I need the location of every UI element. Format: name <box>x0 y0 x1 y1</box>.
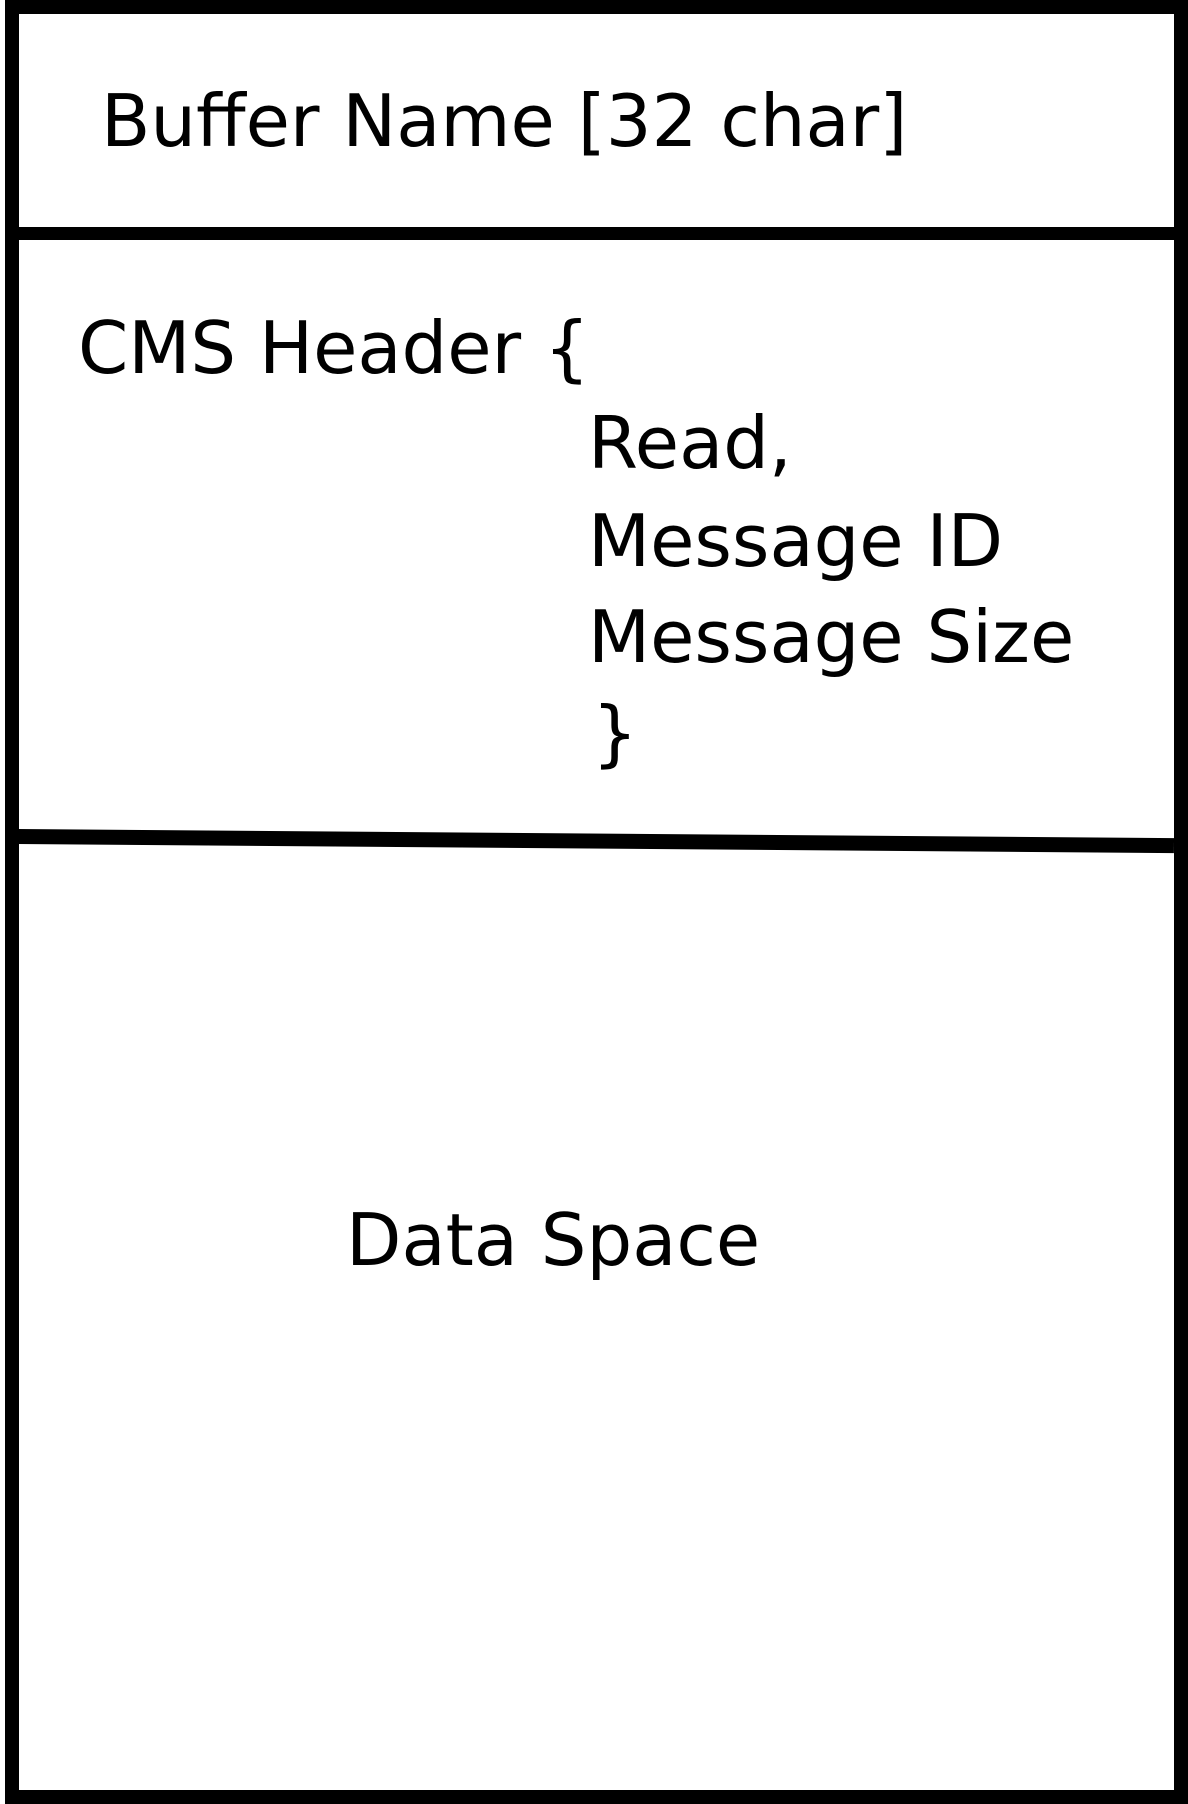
cms-header-open-line: CMS Header { <box>78 312 590 384</box>
cms-header-field-read: Read, <box>588 407 792 479</box>
diagram-outer-frame <box>5 0 1188 1804</box>
cms-header-field-message-id: Message ID <box>588 505 1003 577</box>
buffer-layout-diagram: Buffer Name [32 char] CMS Header { Read,… <box>0 0 1188 1804</box>
divider-buffer-name-cms-header <box>17 227 1174 240</box>
buffer-name-label: Buffer Name [32 char] <box>101 85 907 157</box>
cms-header-close-brace: } <box>592 697 638 769</box>
cms-header-field-message-size: Message Size <box>588 601 1074 673</box>
data-space-label: Data Space <box>346 1204 760 1276</box>
